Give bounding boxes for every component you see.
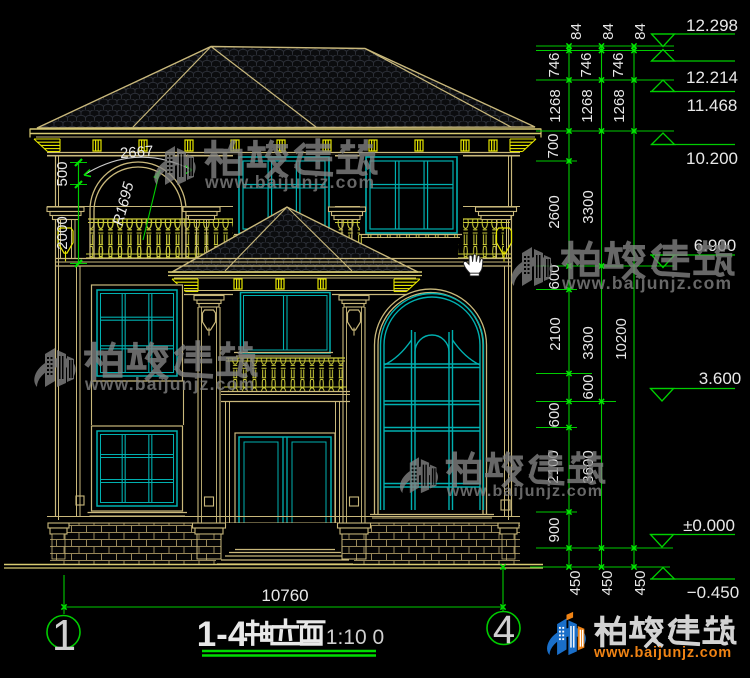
svg-text:500: 500 (54, 161, 71, 186)
svg-text:10200: 10200 (613, 318, 630, 360)
svg-text:2600: 2600 (546, 195, 563, 228)
svg-text:84: 84 (632, 23, 649, 40)
svg-text:1268: 1268 (611, 89, 628, 122)
svg-text:3.600: 3.600 (699, 369, 742, 388)
svg-text:450: 450 (599, 570, 616, 595)
svg-text:3300: 3300 (580, 190, 597, 223)
svg-text:2000: 2000 (54, 216, 71, 249)
svg-text:12.214: 12.214 (686, 68, 738, 87)
svg-text:12.298: 12.298 (686, 16, 738, 35)
svg-text:1268: 1268 (547, 89, 564, 122)
svg-text:www.baijunjz.com: www.baijunjz.com (446, 482, 604, 500)
svg-text:±0.000: ±0.000 (683, 516, 735, 535)
svg-text:900: 900 (546, 517, 563, 542)
svg-text:www.baijunjz.com: www.baijunjz.com (84, 374, 255, 394)
svg-text:10.200: 10.200 (686, 149, 738, 168)
svg-text:1268: 1268 (579, 89, 596, 122)
svg-text:746: 746 (546, 52, 563, 77)
svg-text:11.468: 11.468 (687, 96, 738, 115)
svg-text:1: 1 (52, 611, 76, 660)
svg-text:450: 450 (567, 570, 584, 595)
svg-text:4: 4 (493, 608, 515, 652)
svg-text:1:10 0: 1:10 0 (326, 626, 384, 649)
svg-text:450: 450 (632, 570, 649, 595)
svg-text:700: 700 (545, 133, 562, 158)
svg-text:www.baijunjz.com: www.baijunjz.com (204, 172, 375, 192)
svg-text:600: 600 (580, 374, 597, 399)
svg-text:3300: 3300 (580, 326, 597, 359)
svg-text:1-4: 1-4 (197, 615, 248, 654)
svg-text:www.baijunjz.com: www.baijunjz.com (593, 645, 732, 661)
svg-text:84: 84 (568, 23, 585, 40)
svg-text:2100: 2100 (547, 317, 564, 350)
svg-text:84: 84 (600, 23, 617, 40)
svg-text:www.baijunjz.com: www.baijunjz.com (561, 273, 732, 293)
svg-text:746: 746 (610, 52, 627, 77)
svg-text:−0.450: −0.450 (687, 583, 739, 602)
svg-text:600: 600 (546, 402, 563, 427)
svg-text:746: 746 (578, 52, 595, 77)
svg-text:10760: 10760 (261, 586, 308, 605)
